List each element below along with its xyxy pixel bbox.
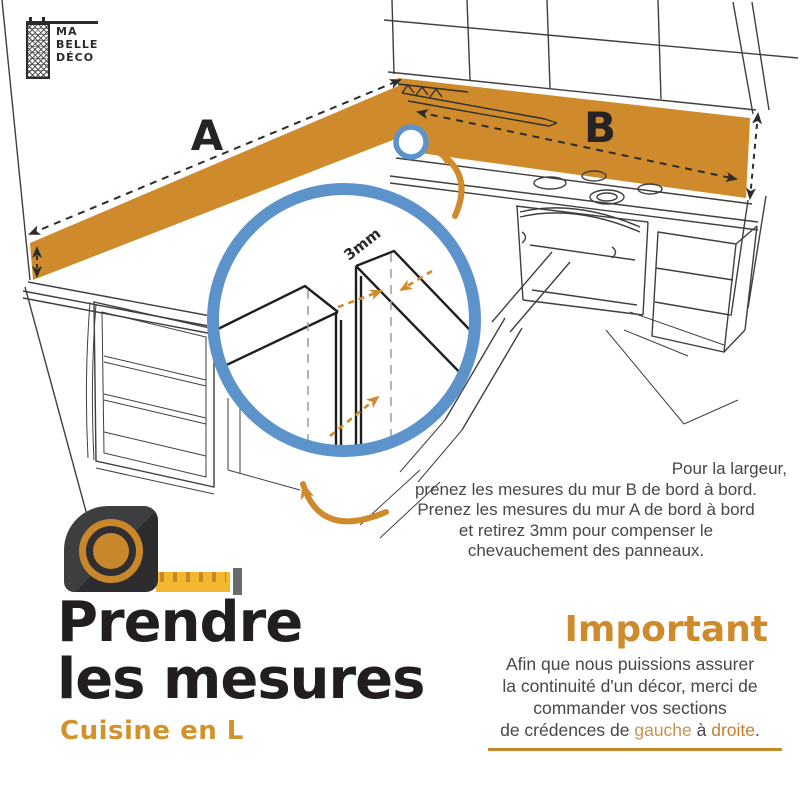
note-line-5: chevauchement des panneaux. <box>385 541 787 562</box>
title-line-1: Prendre <box>57 594 424 651</box>
tape-ticks <box>160 572 226 582</box>
tape-measure-icon <box>64 506 249 596</box>
corner-junction-marker <box>396 127 426 157</box>
infographic-canvas: MA BELLE DÉCO <box>0 0 800 800</box>
note-line-2: prenez les mesures du mur B de bord à bo… <box>385 480 787 501</box>
word-droite: droite <box>711 720 755 740</box>
tape-body <box>64 506 158 592</box>
important-block: Important Afin que nous puissions assure… <box>476 610 784 751</box>
tape-band <box>156 572 230 592</box>
note-line-4: et retirez 3mm pour compenser le <box>385 521 787 542</box>
wall-b-band <box>398 78 750 198</box>
tape-reel-ring <box>86 526 136 576</box>
page-subtitle: Cuisine en L <box>60 716 244 746</box>
tape-reel-inner <box>93 533 129 569</box>
wall-a-label: A <box>191 111 224 160</box>
important-line-1: Afin que nous puissions assurer <box>476 653 784 675</box>
word-gauche: gauche <box>634 720 691 740</box>
note-line-3: Prenez les mesures du mur A de bord à bo… <box>385 500 787 521</box>
tape-reel-outer <box>79 519 143 583</box>
measure-instructions: Pour la largeur, prenez les mesures du m… <box>385 459 787 562</box>
magnifier-pointer-arrow <box>303 484 386 521</box>
important-heading: Important <box>476 610 784 650</box>
important-underline <box>488 748 782 751</box>
important-line-2: la continuité d'un décor, merci de <box>476 675 784 697</box>
important-line-3: commander vos sections <box>476 697 784 719</box>
left-wall-edge <box>2 0 30 280</box>
page-title: Prendre les mesures <box>57 594 424 708</box>
title-line-2: les mesures <box>57 651 424 708</box>
note-line-1: Pour la largeur, <box>385 459 787 480</box>
wall-b-label: B <box>584 103 616 152</box>
important-line-4: de crédences de gauche à droite. <box>476 719 784 741</box>
important-text: Afin que nous puissions assurer la conti… <box>476 653 784 741</box>
